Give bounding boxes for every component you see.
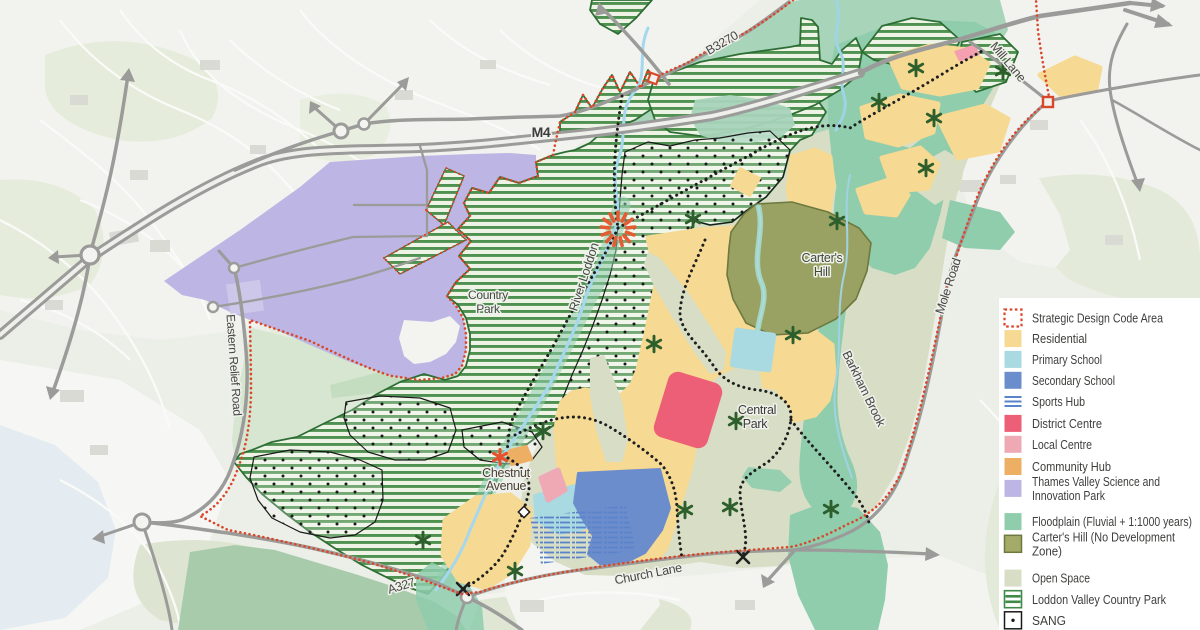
svg-text:Zone): Zone) xyxy=(1032,544,1062,559)
svg-text:Community Hub: Community Hub xyxy=(1032,459,1111,474)
svg-text:Park: Park xyxy=(743,417,769,431)
svg-text:Innovation Park: Innovation Park xyxy=(1032,488,1105,503)
svg-text:Local Centre: Local Centre xyxy=(1032,437,1092,452)
svg-text:Chestnut: Chestnut xyxy=(482,466,530,480)
svg-text:Hill: Hill xyxy=(814,265,830,279)
svg-text:M4: M4 xyxy=(532,124,551,140)
svg-text:Carter's: Carter's xyxy=(802,251,843,265)
svg-text:Primary School: Primary School xyxy=(1032,352,1102,367)
svg-text:Residential: Residential xyxy=(1032,331,1087,346)
svg-text:Avenue: Avenue xyxy=(486,479,527,493)
svg-text:Strategic Design Code Area: Strategic Design Code Area xyxy=(1032,311,1164,326)
svg-text:Carter's Hill (No Development: Carter's Hill (No Development xyxy=(1032,530,1175,545)
svg-text:Park: Park xyxy=(476,302,501,316)
svg-text:Country: Country xyxy=(468,288,508,302)
svg-text:Open Space: Open Space xyxy=(1032,571,1090,586)
svg-text:SANG: SANG xyxy=(1032,613,1066,628)
svg-text:Sports Hub: Sports Hub xyxy=(1032,394,1085,409)
svg-text:Loddon Valley Country Park: Loddon Valley Country Park xyxy=(1032,592,1166,607)
svg-text:Secondary School: Secondary School xyxy=(1032,373,1115,388)
svg-text:Thames Valley Science and: Thames Valley Science and xyxy=(1032,474,1160,489)
svg-text:District Centre: District Centre xyxy=(1032,416,1102,431)
svg-text:Central: Central xyxy=(738,403,776,417)
svg-text:Floodplain (Fluvial + 1:1000 y: Floodplain (Fluvial + 1:1000 years) xyxy=(1032,514,1192,529)
